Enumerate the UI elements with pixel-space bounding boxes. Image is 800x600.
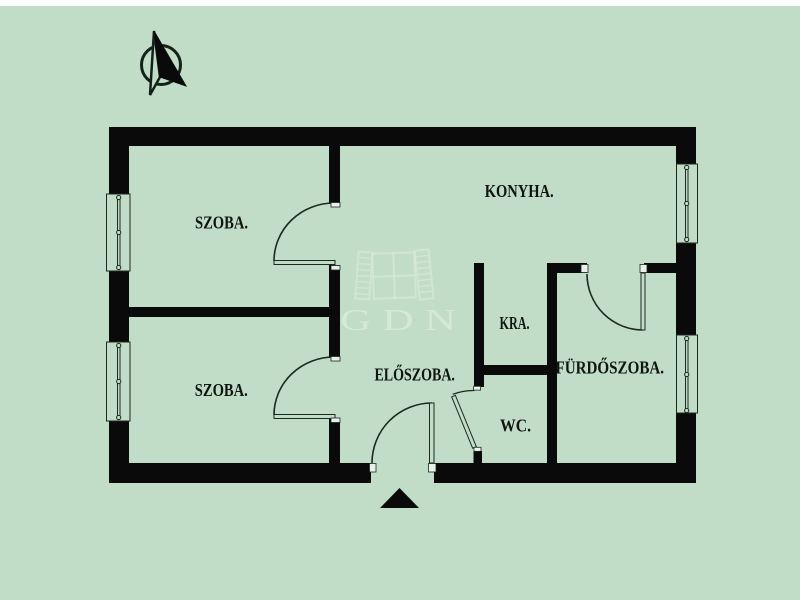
svg-text:WC.: WC. [500,416,531,436]
svg-text:G D N: G D N [340,302,456,337]
svg-text:FÜRDŐSZOBA.: FÜRDŐSZOBA. [556,358,665,378]
svg-text:SZOBA.: SZOBA. [195,380,248,400]
svg-text:ELŐSZOBA.: ELŐSZOBA. [374,365,455,385]
svg-text:SZOBA.: SZOBA. [195,213,248,233]
svg-text:KONYHA.: KONYHA. [485,181,554,201]
svg-text:KRA.: KRA. [500,313,530,333]
